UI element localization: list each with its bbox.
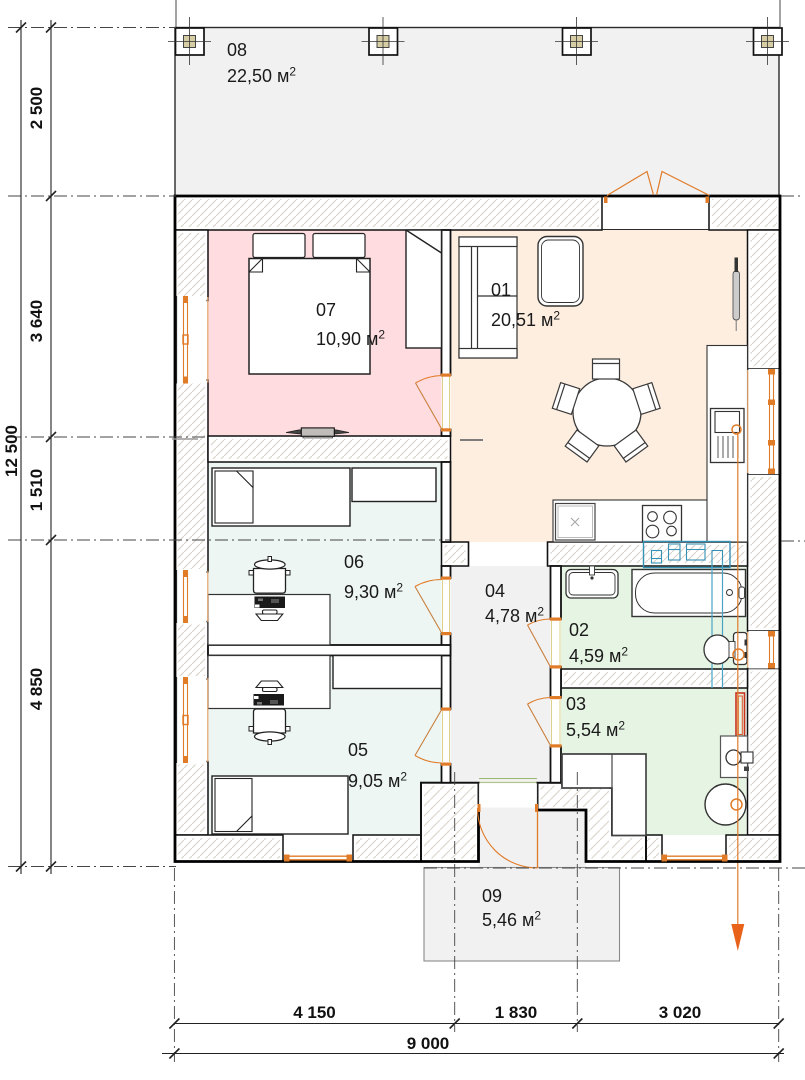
svg-text:3 020: 3 020: [659, 1003, 702, 1022]
svg-text:9,05 м2: 9,05 м2: [348, 770, 407, 792]
svg-text:1 510: 1 510: [27, 469, 46, 512]
svg-text:5,46 м2: 5,46 м2: [482, 909, 541, 931]
svg-text:07: 07: [316, 300, 336, 320]
svg-text:12 500: 12 500: [2, 425, 21, 477]
svg-text:22,50 м2: 22,50 м2: [227, 65, 296, 87]
svg-text:10,90 м2: 10,90 м2: [316, 328, 385, 350]
svg-text:2 500: 2 500: [27, 87, 46, 130]
svg-text:9 000: 9 000: [407, 1034, 450, 1053]
svg-text:3 640: 3 640: [27, 300, 46, 343]
svg-text:09: 09: [482, 886, 502, 906]
svg-text:01: 01: [491, 280, 511, 300]
svg-text:05: 05: [348, 740, 368, 760]
svg-text:04: 04: [485, 581, 505, 601]
svg-text:06: 06: [344, 552, 364, 572]
svg-text:4 850: 4 850: [27, 668, 46, 711]
svg-text:4 150: 4 150: [293, 1003, 336, 1022]
svg-text:02: 02: [569, 620, 589, 640]
svg-text:03: 03: [566, 694, 586, 714]
svg-text:08: 08: [227, 40, 247, 60]
svg-text:20,51 м2: 20,51 м2: [491, 309, 560, 331]
svg-text:4,59 м2: 4,59 м2: [569, 645, 628, 667]
svg-text:4,78 м2: 4,78 м2: [485, 605, 544, 627]
svg-text:9,30 м2: 9,30 м2: [344, 581, 403, 603]
svg-text:1 830: 1 830: [495, 1003, 538, 1022]
svg-text:5,54 м2: 5,54 м2: [566, 719, 625, 741]
